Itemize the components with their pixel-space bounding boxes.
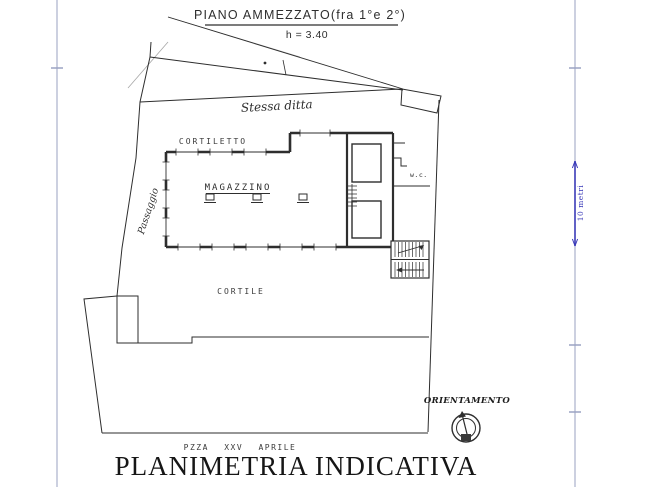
shaft-hatch-top [352, 144, 381, 182]
windows-left [163, 162, 170, 236]
service-block [347, 143, 430, 238]
floor-plan-drawing: 10 metri [0, 0, 650, 487]
room-label-passaggio: Passaggio [136, 186, 162, 236]
sheet-caption: PLANIMETRIA INDICATIVA [115, 451, 478, 481]
building-walls [163, 130, 394, 251]
page-title: PIANO AMMEZZATO(fra 1°e 2°) [194, 8, 406, 22]
plan-sheet: 10 metri [0, 0, 650, 487]
compass-icon [452, 411, 480, 442]
wc-walls [393, 143, 430, 186]
room-label-stessa-ditta: Stessa ditta [241, 97, 313, 115]
height-note: h = 3.40 [286, 29, 328, 41]
scale-bar: 10 metri [572, 161, 585, 246]
ladder-icon [347, 184, 357, 210]
scale-label: 10 metri [576, 185, 585, 222]
plan-text-labels: PIANO AMMEZZATO(fra 1°e 2°) h = 3.40 Ste… [115, 8, 511, 481]
construction-lines [128, 17, 300, 88]
room-label-wc: w.c. [410, 171, 428, 179]
room-label-cortile: CORTILE [217, 287, 265, 296]
room-label-magazzino: MAGAZZINO [205, 183, 272, 193]
shaft-hatch-bottom [352, 201, 381, 238]
room-label-cortiletto: CORTILETTO [179, 137, 247, 146]
orientation-label: ORIENTAMENTO [424, 396, 510, 406]
sheet-frame [51, 0, 581, 487]
column-symbols [204, 194, 309, 203]
staircase [391, 241, 429, 278]
